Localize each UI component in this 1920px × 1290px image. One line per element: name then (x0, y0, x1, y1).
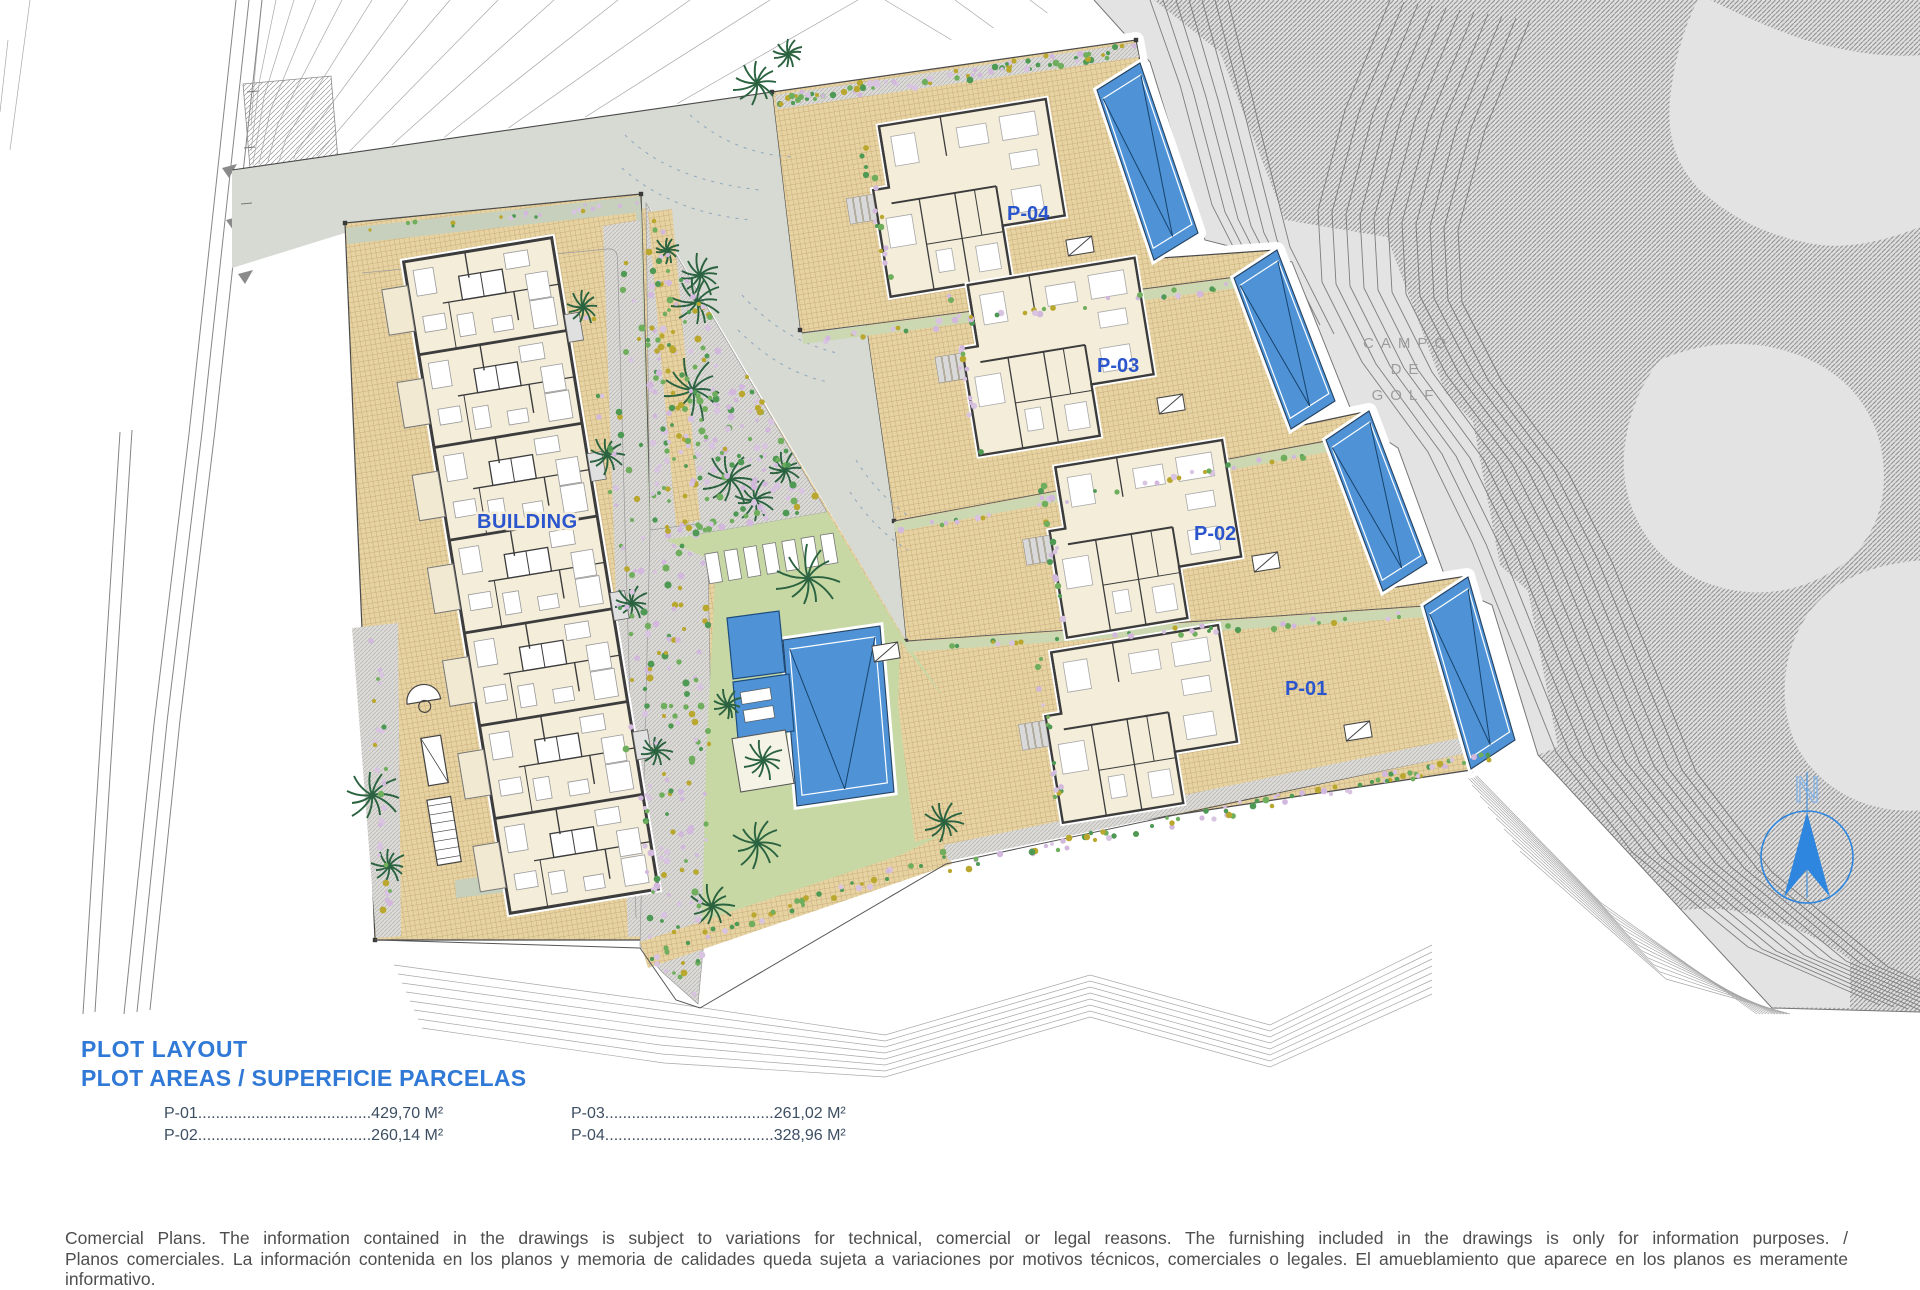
svg-text:PLOT AREAS / SUPERFICIE PARCEL: PLOT AREAS / SUPERFICIE PARCELAS (81, 1065, 526, 1091)
svg-text:CAMPO: CAMPO (1363, 335, 1453, 352)
svg-text:BUILDING: BUILDING (477, 511, 578, 533)
svg-text:P-01..........................: P-01....................................… (164, 1105, 444, 1122)
svg-text:P-02..........................: P-02....................................… (164, 1127, 444, 1144)
svg-text:P-01: P-01 (1285, 678, 1327, 700)
svg-text:P-03: P-03 (1097, 355, 1139, 377)
svg-text:GOLF: GOLF (1372, 387, 1441, 404)
svg-text:P-02: P-02 (1194, 523, 1236, 545)
svg-text:P-04: P-04 (1007, 203, 1050, 225)
svg-text:DE: DE (1391, 361, 1426, 378)
svg-text:P-04..........................: P-04....................................… (571, 1127, 846, 1144)
svg-text:P-03..........................: P-03....................................… (571, 1105, 846, 1122)
svg-text:N: N (1794, 769, 1820, 810)
svg-text:PLOT LAYOUT: PLOT LAYOUT (81, 1036, 248, 1062)
